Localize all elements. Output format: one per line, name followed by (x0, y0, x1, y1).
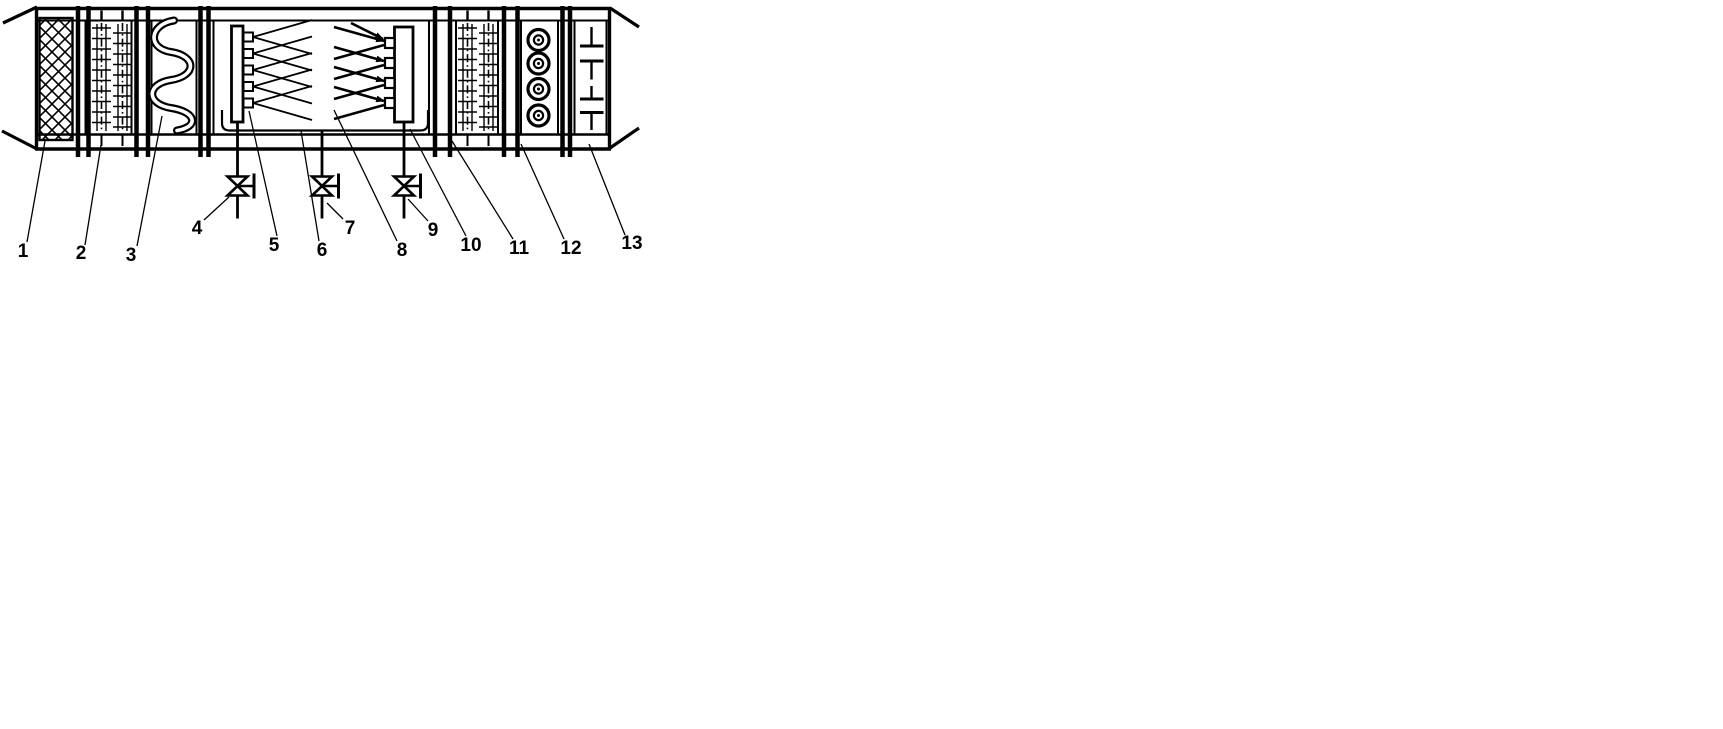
coil-tube-row (479, 11, 498, 147)
spray-nozzles-left (244, 33, 254, 108)
spray-cones-right (334, 23, 384, 119)
leader-9 (408, 199, 428, 221)
valve-middle (312, 174, 339, 199)
outlet-flare-bottom (610, 128, 639, 148)
leader-1 (27, 141, 45, 242)
leader-10 (410, 129, 466, 236)
outlet-section (580, 27, 604, 130)
spray-cones-left (253, 20, 312, 120)
schematic-page: 1 2 3 4 5 6 7 8 9 10 11 12 13 (0, 0, 1723, 729)
finned-coil-first (92, 11, 132, 147)
serpentine-heater (152, 21, 192, 131)
coil-tube-row (92, 11, 111, 147)
leader-13 (589, 144, 625, 235)
eliminator-section (528, 30, 549, 127)
valve-left (228, 174, 255, 199)
leader-4 (204, 197, 229, 220)
inlet-flare-bottom (2, 131, 37, 149)
valve-right (394, 174, 421, 199)
connector-symbol (580, 27, 604, 80)
ahu-schematic-drawing (0, 0, 700, 300)
finned-coil-second (458, 11, 498, 147)
coil-tube-row (458, 11, 477, 147)
wheel-symbol (528, 30, 549, 51)
wheel-symbol (528, 105, 549, 126)
wheel-symbol (528, 79, 549, 100)
leader-12 (521, 144, 564, 239)
casing (35, 7, 611, 150)
leader-2 (85, 145, 101, 245)
outlet-flare-top (610, 8, 639, 27)
spray-header-right (334, 23, 413, 122)
inlet-flare-top (3, 7, 37, 23)
coil-tube-row (113, 11, 132, 147)
leader-7 (327, 203, 343, 219)
spray-header-left (232, 20, 313, 122)
mesh-filter (40, 18, 73, 140)
spray-nozzles-right (385, 38, 395, 108)
connector-symbol (580, 86, 604, 130)
wheel-symbol (528, 53, 549, 74)
